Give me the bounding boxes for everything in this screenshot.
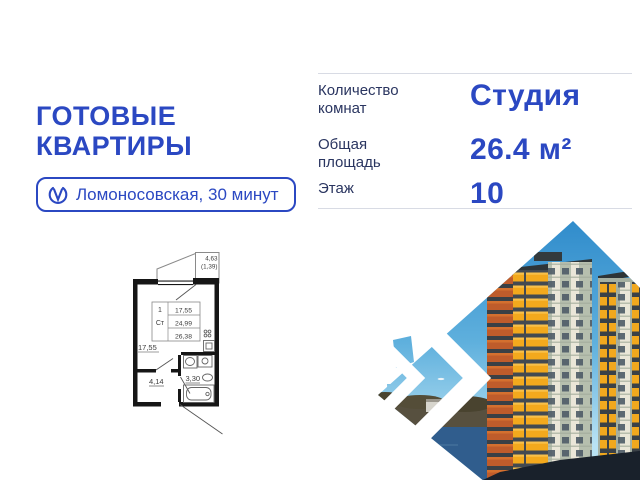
title-line-2: КВАРТИРЫ: [36, 131, 192, 161]
metro-station-label: Ломоносовская, 30 минут: [76, 185, 279, 205]
title-line-1: ГОТОВЫЕ: [36, 101, 192, 131]
room-area-labels: 17,55 4,14 3,30: [138, 343, 200, 386]
unit-info-table: 1 Ст 17,55 24,99 26,38: [152, 302, 200, 341]
hallway-area-label: 4,14: [149, 377, 164, 386]
page-title: ГОТОВЫЕ КВАРТИРЫ: [36, 101, 192, 161]
spec-row-floor: Этаж 10: [318, 175, 632, 201]
spec-value-area: 26.4 м²: [470, 135, 572, 165]
unit-rooms-count: 1: [158, 307, 162, 314]
spec-row-area: Общая площадь 26.4 м²: [318, 129, 632, 175]
listing-ad-card[interactable]: ГОТОВЫЕ КВАРТИРЫ Ломоносовская, 30 минут…: [0, 0, 640, 480]
spec-row-rooms: Количество комнат Студия: [318, 74, 632, 129]
spec-label-area: Общая площадь: [318, 136, 470, 172]
balcony-area-reduced-label: (1,39): [201, 264, 217, 271]
spec-value-floor: 10: [470, 179, 504, 209]
main-tower: [485, 252, 592, 480]
metro-badge: Ломоносовская, 30 минут: [36, 177, 296, 212]
unit-total-area: 26,38: [175, 334, 192, 341]
photo-clipped-scene: [360, 205, 640, 480]
metro-icon: [48, 185, 68, 205]
bathroom-area-label: 3,30: [186, 374, 201, 383]
unit-usable-area: 24,99: [175, 321, 192, 328]
specs-table: Количество комнат Студия Общая площадь 2…: [318, 73, 632, 209]
spec-label-floor: Этаж: [318, 180, 470, 198]
unit-living-area: 17,55: [175, 308, 192, 315]
building-photo-collage: [0, 0, 640, 480]
right-tower: [598, 268, 640, 480]
spec-label-rooms: Количество комнат: [318, 82, 470, 118]
room-area-label: 17,55: [138, 343, 157, 352]
unit-type: Ст: [156, 320, 165, 327]
floor-plan: 4,63 (1,39): [128, 248, 228, 440]
plane-speck: [438, 378, 445, 380]
balcony-area-label: 4,63: [205, 256, 218, 263]
spec-value-rooms: Студия: [470, 81, 580, 111]
